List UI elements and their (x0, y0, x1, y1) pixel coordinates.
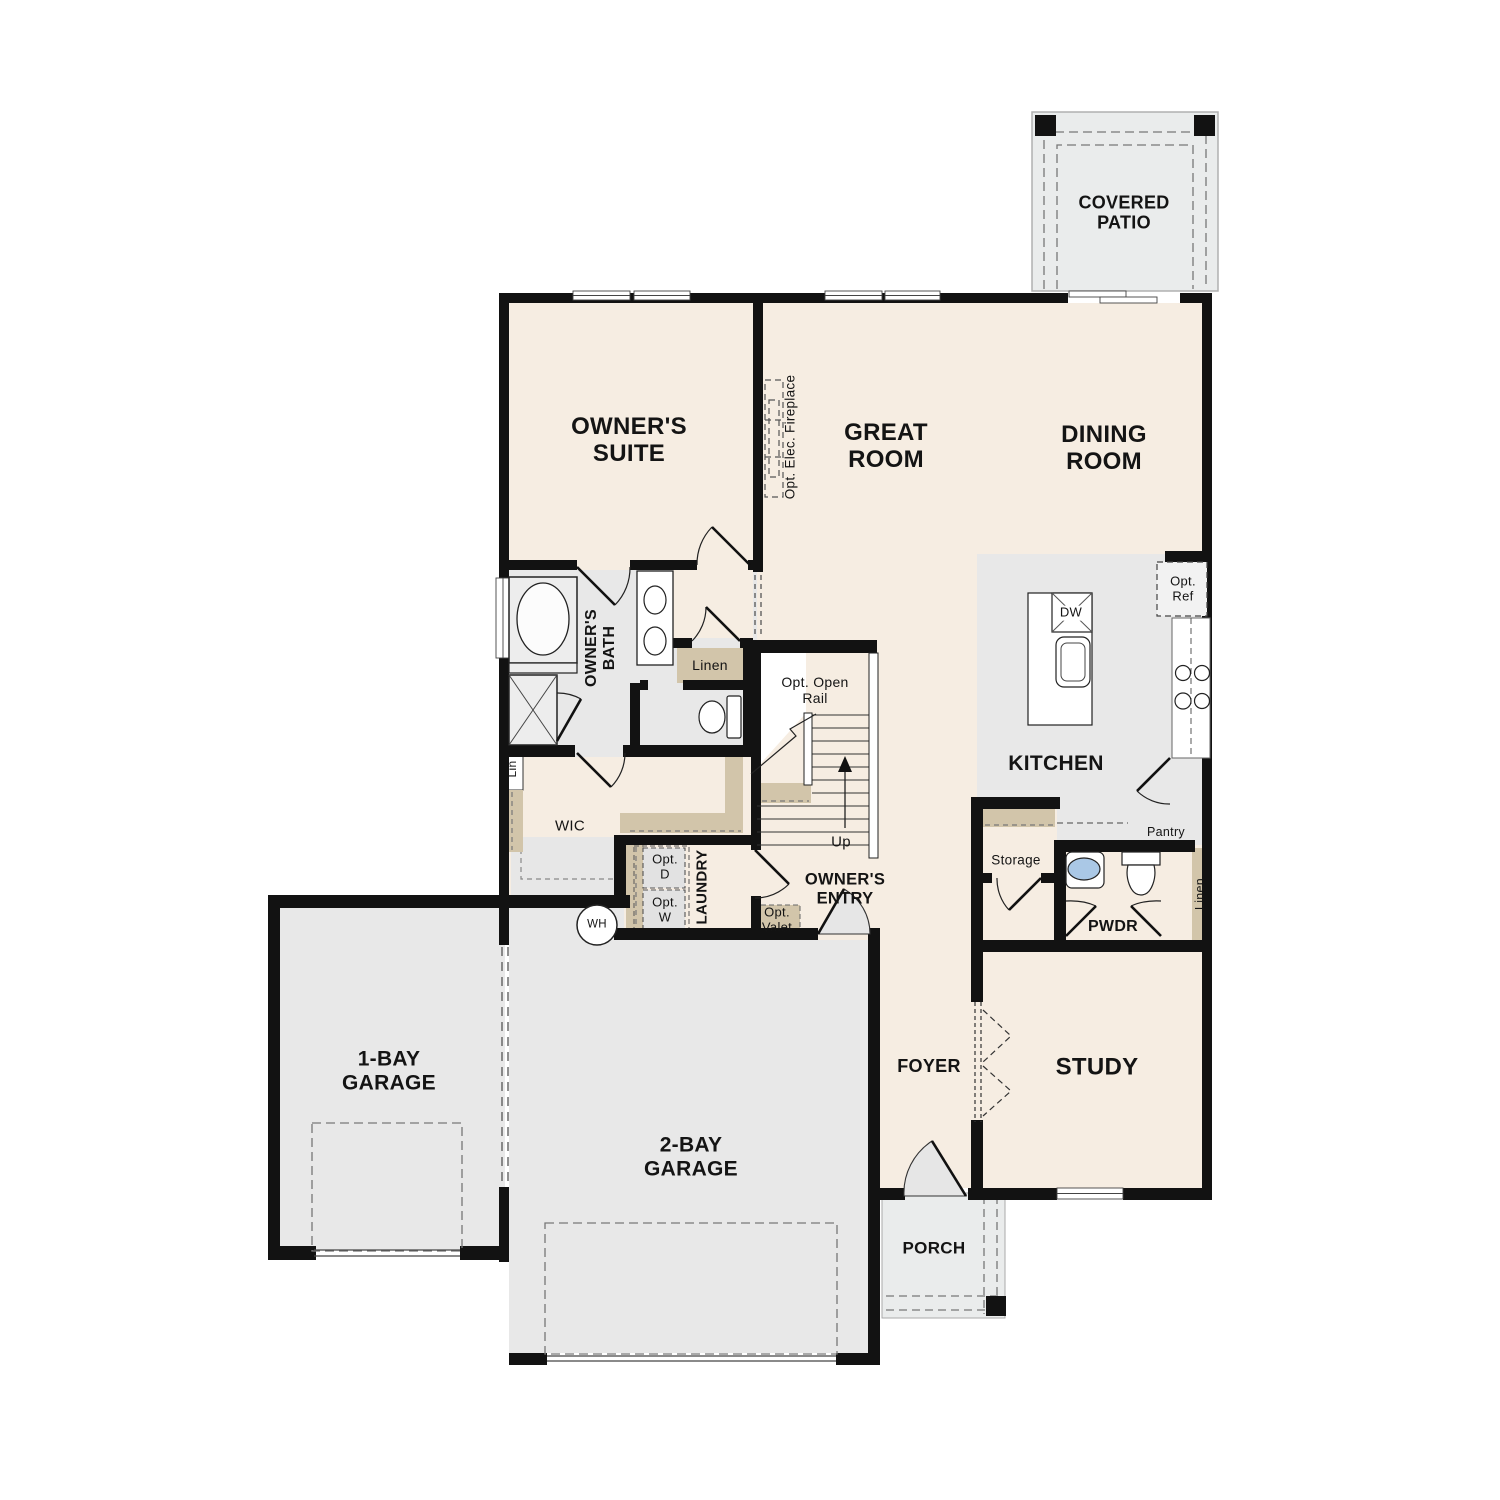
wall-stairs-top (751, 640, 877, 653)
label-wic: WIC (555, 819, 585, 836)
label-linen-closet: Linen (692, 658, 728, 674)
floor-plan-graphics (0, 0, 1500, 1500)
label-water-heater: WH (587, 919, 607, 932)
patio-post-left (1035, 115, 1056, 136)
wall-storage-top (971, 797, 1060, 809)
garage2-door (547, 1356, 836, 1361)
label-opt-fireplace: Opt. Elec. Fireplace (782, 375, 797, 500)
label-hall-linen: Linen (1193, 878, 1207, 910)
label-opt-open-rail: Opt. Open Rail (781, 675, 848, 707)
floor-plan: COVERED PATIO OWNER'S SUITE GREAT ROOM D… (0, 0, 1500, 1500)
label-opt-valet: Opt. Valet (762, 905, 792, 934)
wall-storage-right (1054, 845, 1066, 940)
wall-garage2-right (868, 928, 880, 1365)
label-laundry: LAUNDRY (695, 850, 712, 925)
label-owners-bath: OWNER'S BATH (583, 609, 619, 687)
stair-rail-left (804, 713, 812, 785)
label-opt-ref: Opt. Ref (1170, 574, 1196, 603)
pwdr-toilet-tank (1122, 852, 1160, 865)
label-storage: Storage (991, 852, 1040, 867)
label-great-room: GREAT ROOM (844, 419, 928, 473)
tub-deck (509, 663, 577, 673)
stair-rail-right (869, 653, 878, 858)
label-pantry: Pantry (1147, 825, 1185, 839)
wic-shelf-bottom (620, 813, 743, 833)
vanity-sink-2 (644, 627, 666, 655)
wall-study-top (971, 940, 1212, 952)
label-porch: PORCH (903, 1238, 966, 1257)
wic-shelf-right (725, 757, 743, 815)
wall-garage-top (268, 895, 630, 908)
label-dishwasher: DW (1058, 606, 1084, 621)
label-1bay-garage: 1-BAY GARAGE (342, 1047, 436, 1094)
toilet-tank (727, 696, 741, 738)
label-up: Up (831, 835, 851, 852)
label-foyer: FOYER (897, 1056, 961, 1076)
label-owners-suite: OWNER'S SUITE (571, 413, 687, 467)
wall-kitchen-stub (1165, 551, 1212, 563)
wall-garage1-left (268, 895, 280, 1258)
pwdr-sink (1068, 858, 1100, 880)
bath-nook-floor (673, 570, 753, 638)
patio-post-right (1194, 115, 1215, 136)
wall-suite-right (753, 293, 763, 572)
wall-laundry-top (614, 835, 757, 845)
label-opt-washer: Opt. W (652, 895, 678, 924)
garage-2bay-floor (509, 908, 868, 1353)
label-2bay-garage: 2-BAY GARAGE (644, 1133, 738, 1180)
vanity-sink-1 (644, 586, 666, 614)
wall-garage-divider (499, 1187, 509, 1262)
porch-post (986, 1296, 1006, 1316)
toilet-bowl (699, 701, 725, 733)
patio-slider-panel-1 (1069, 291, 1126, 297)
label-dining-room: DINING ROOM (1061, 421, 1147, 475)
label-pwdr: PWDR (1088, 918, 1138, 936)
storage-shelf (983, 809, 1055, 827)
label-lin-closet: Lin (506, 761, 520, 778)
label-covered-patio: COVERED PATIO (1078, 193, 1169, 234)
laundry-shelf (626, 845, 644, 928)
wall-pwdr-top (1054, 840, 1195, 852)
wall-storage-left (971, 797, 983, 952)
patio-slider-panel-2 (1100, 297, 1157, 303)
wic-gray-patch (511, 837, 624, 897)
label-owners-entry: OWNER'S ENTRY (805, 870, 885, 907)
label-study: STUDY (1056, 1053, 1139, 1080)
label-opt-dryer: Opt. D (652, 852, 678, 881)
label-kitchen: KITCHEN (1008, 752, 1103, 776)
